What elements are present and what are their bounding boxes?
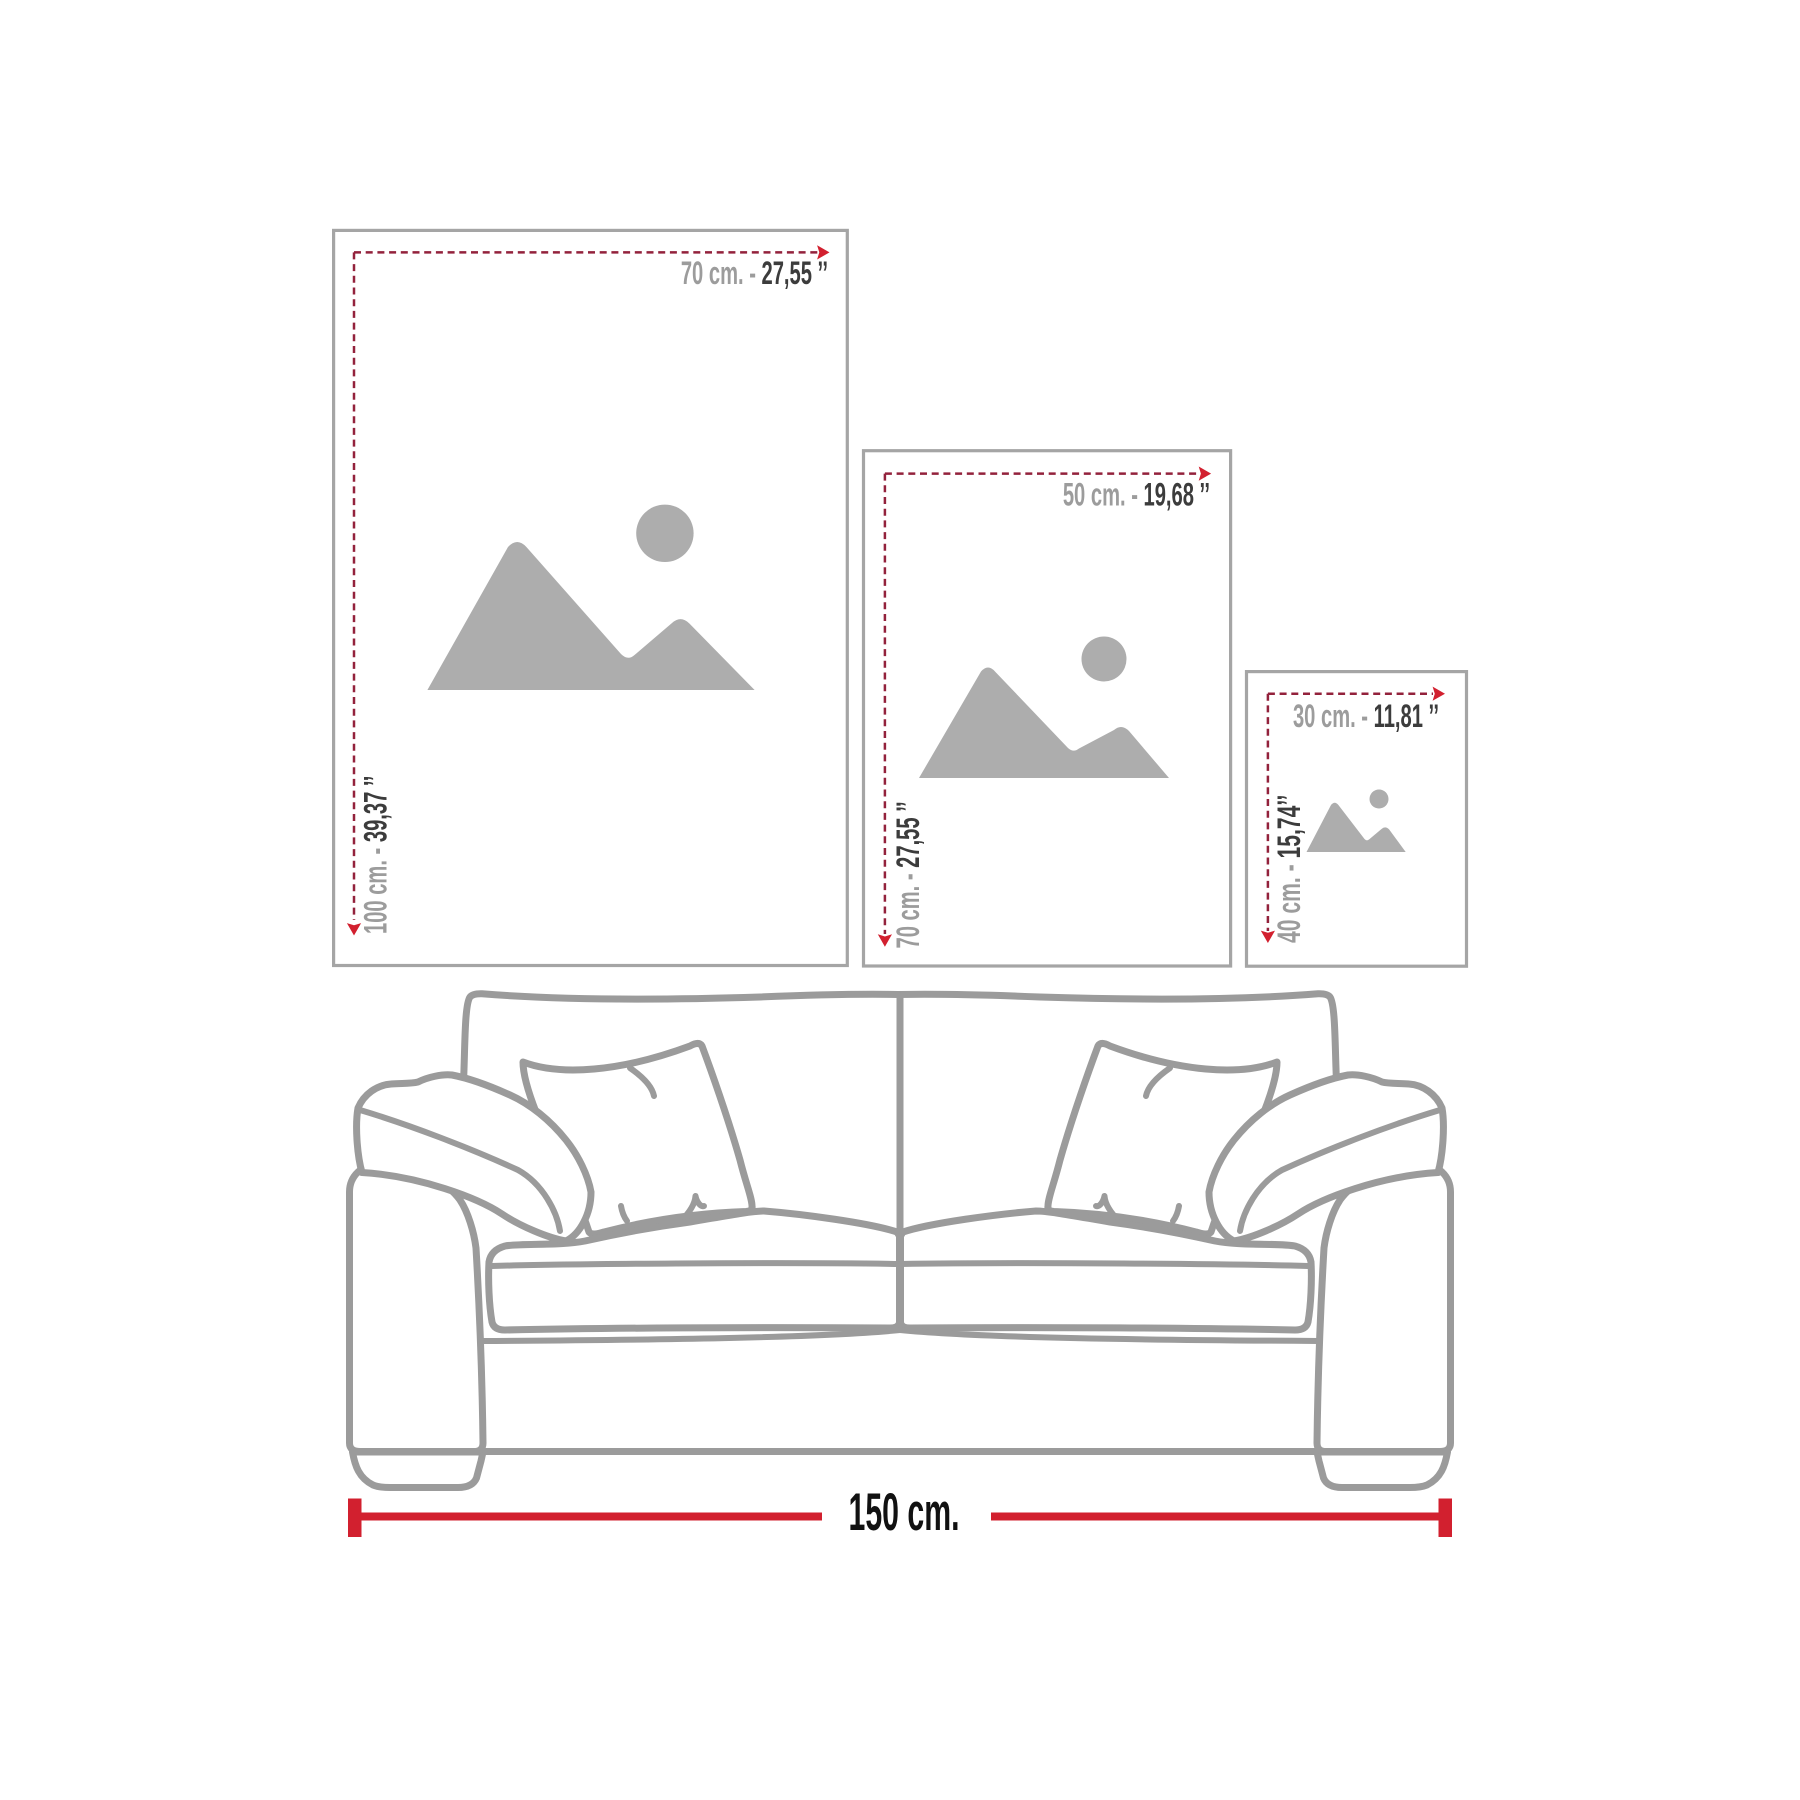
svg-text:100 cm. - 39,37 ’’: 100 cm. - 39,37 ’’ <box>358 776 394 934</box>
svg-text:40 cm. - 15,74’’: 40 cm. - 15,74’’ <box>1270 795 1307 943</box>
svg-text:30 cm. - 11,81 ’’: 30 cm. - 11,81 ’’ <box>1293 698 1439 734</box>
svg-text:70 cm. - 27,55 ’’: 70 cm. - 27,55 ’’ <box>890 801 926 948</box>
svg-text:70 cm. - 27,55 ’’: 70 cm. - 27,55 ’’ <box>681 255 828 291</box>
svg-text:50 cm. - 19,68 ’’: 50 cm. - 19,68 ’’ <box>1063 477 1210 513</box>
svg-text:150 cm.: 150 cm. <box>848 1483 959 1542</box>
